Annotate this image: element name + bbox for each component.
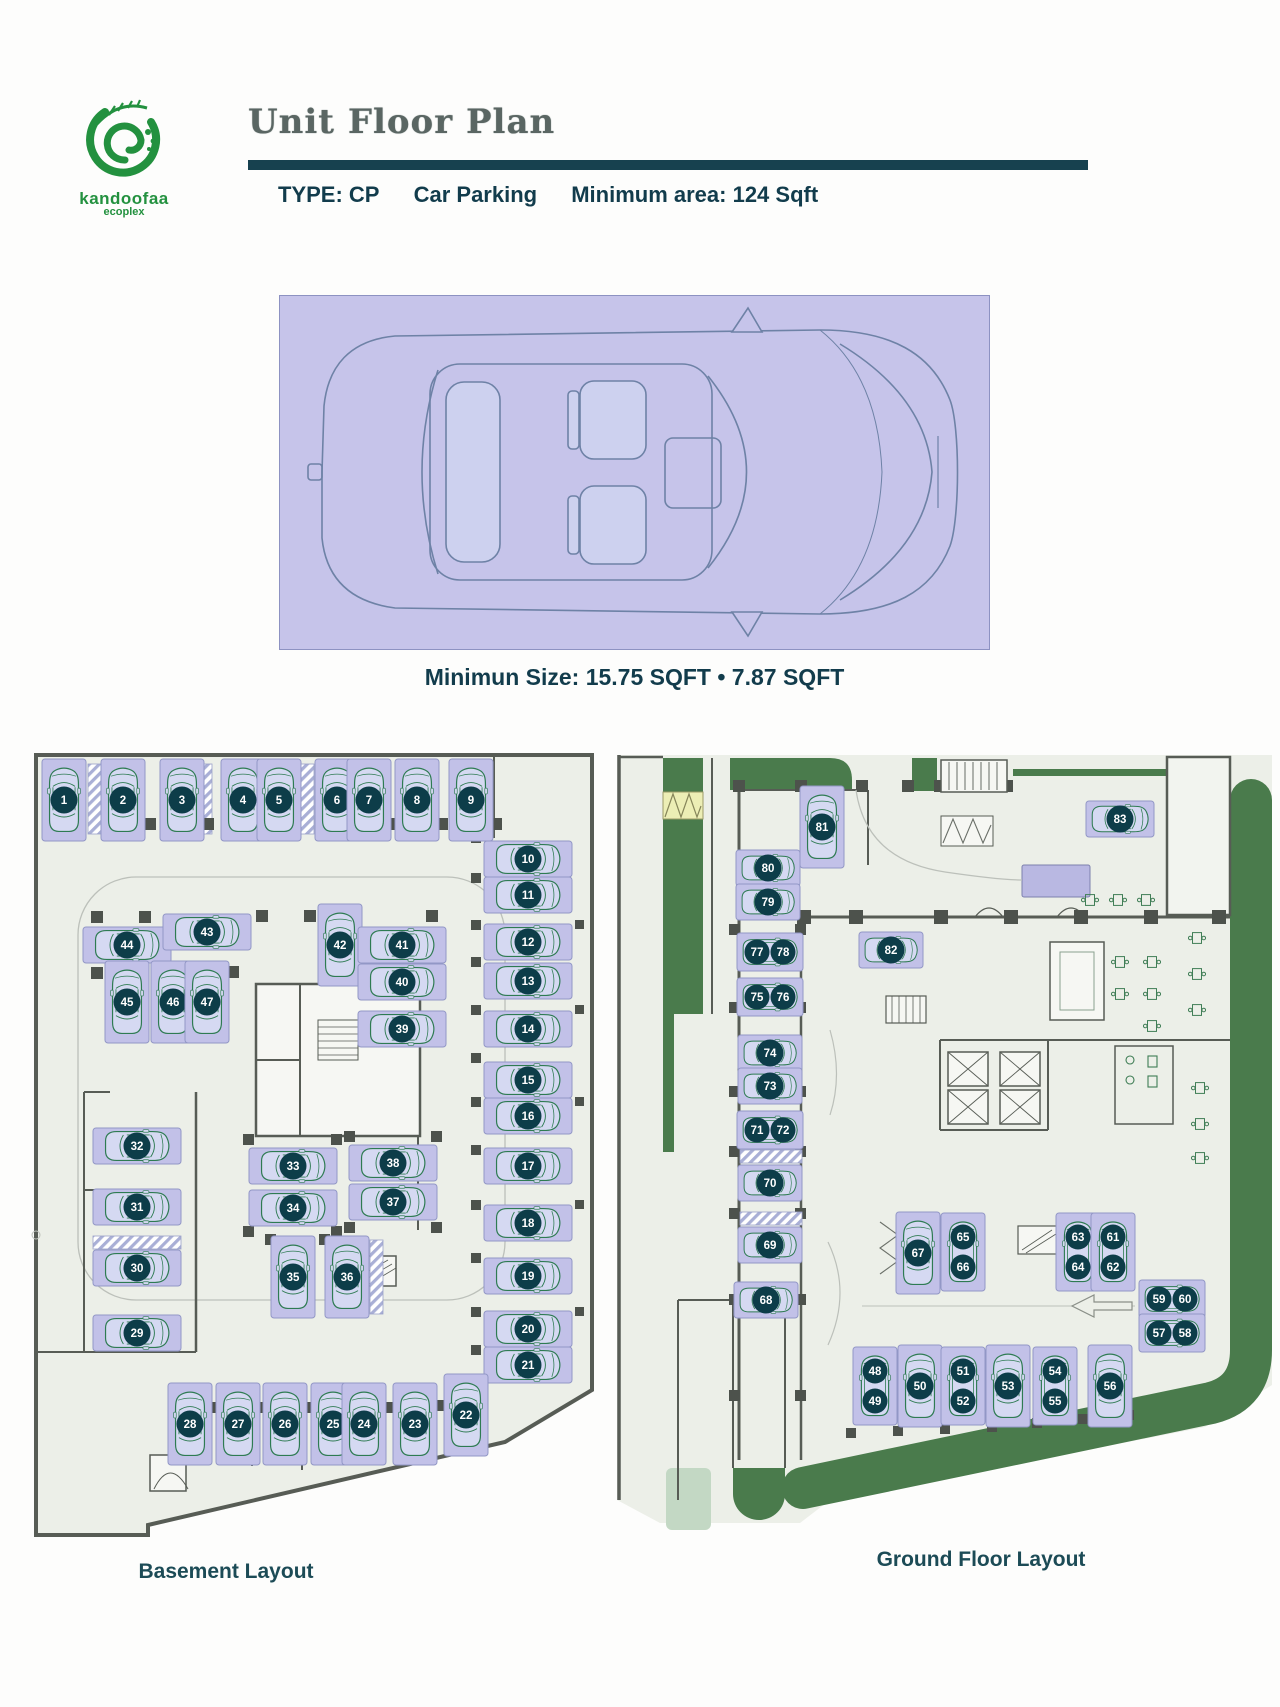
spot-number: 64 (1072, 1262, 1085, 1274)
parking-spot-33: 33 (249, 1148, 337, 1184)
basement-layout-label: Basement Layout (106, 1560, 346, 1584)
spot-number: 23 (409, 1419, 422, 1431)
spot-number: 51 (957, 1366, 970, 1378)
spot-number: 74 (764, 1048, 777, 1060)
spot-number: 78 (777, 947, 790, 959)
spot-number: 79 (762, 897, 775, 909)
parking-spot-40: 40 (358, 964, 446, 1000)
title-underline-bar (248, 160, 1088, 170)
parking-spot-70: 70 (738, 1165, 802, 1201)
parking-spot-19: 19 (484, 1258, 572, 1294)
spot-number: 24 (358, 1419, 371, 1431)
parking-spot-71-72: 7172 (737, 1111, 803, 1149)
unit-type-line: TYPE: CP Car Parking Minimum area: 124 S… (278, 182, 846, 208)
spot-number: 17 (522, 1161, 535, 1173)
spot-number: 35 (287, 1272, 300, 1284)
stairs-top (941, 760, 1007, 792)
minimum-size-caption: Minimun Size: 15.75 SQFT • 7.87 SQFT (279, 664, 990, 691)
parking-spot-26: 26 (263, 1383, 307, 1465)
spot-number: 10 (522, 854, 535, 866)
parking-spot-47: 47 (185, 961, 229, 1043)
reception-desk (1022, 865, 1090, 897)
unit-type-name: Car Parking (414, 182, 538, 207)
spot-number: 4 (240, 795, 247, 807)
parking-spot-50: 50 (898, 1345, 942, 1427)
parking-spot-79: 79 (736, 884, 800, 920)
parking-spot-48-49: 4849 (853, 1347, 897, 1425)
parking-spot-24: 24 (342, 1383, 386, 1465)
parking-spot-81: 81 (800, 786, 844, 868)
spot-number: 67 (912, 1248, 925, 1260)
parking-spot-5: 5 (257, 759, 301, 841)
spot-number: 45 (121, 997, 134, 1009)
spot-number: 33 (287, 1161, 300, 1173)
kandoofaa-logo: kandoofaa ecoplex (76, 98, 172, 218)
spot-number: 37 (387, 1197, 400, 1209)
logo-name: kandoofaa (76, 191, 172, 206)
spot-number: 34 (287, 1203, 300, 1215)
parking-spot-14: 14 (484, 1011, 572, 1047)
spot-number: 40 (396, 977, 409, 989)
spot-number: 30 (131, 1263, 144, 1275)
spot-number: 13 (522, 976, 535, 988)
kandoofaa-logo-icon (85, 98, 163, 184)
parking-spot-17: 17 (484, 1148, 572, 1184)
ground-floor-plan: 8180797778757674737172706968828367656663… (600, 690, 1280, 1550)
spot-number: 6 (334, 795, 340, 807)
parking-spot-45: 45 (105, 961, 149, 1043)
spot-number: 83 (1114, 814, 1127, 826)
spot-number: 68 (760, 1295, 773, 1307)
parking-spot-38: 38 (349, 1145, 437, 1181)
parking-spot-35: 35 (271, 1236, 315, 1318)
spot-number: 61 (1107, 1232, 1120, 1244)
spot-number: 63 (1072, 1232, 1085, 1244)
parking-spot-11: 11 (484, 877, 572, 913)
spot-number: 7 (366, 795, 372, 807)
parking-spot-43: 43 (163, 914, 251, 950)
spot-number: 71 (751, 1125, 764, 1137)
parking-spot-54-55: 5455 (1033, 1347, 1077, 1425)
parking-spot-31: 31 (93, 1189, 181, 1225)
parking-spot-2: 2 (101, 759, 145, 841)
spot-number: 2 (120, 795, 126, 807)
spot-number: 56 (1104, 1381, 1117, 1393)
spot-number: 20 (522, 1324, 535, 1336)
basement-floor-plan: 1234567891011121314151617181920214443424… (0, 690, 600, 1550)
spot-number: 73 (764, 1081, 777, 1093)
parking-spot-13: 13 (484, 963, 572, 999)
spot-number: 32 (131, 1141, 144, 1153)
stage-counter (1050, 942, 1104, 1020)
spot-number: 1 (61, 795, 68, 807)
parking-spot-39: 39 (358, 1011, 446, 1047)
spot-number: 21 (522, 1360, 535, 1372)
parking-spot-7: 7 (347, 759, 391, 841)
parking-spot-57-58: 5758 (1139, 1314, 1205, 1352)
parking-spot-32: 32 (93, 1128, 181, 1164)
parking-spot-29: 29 (93, 1315, 181, 1351)
spot-number: 5 (276, 795, 283, 807)
spot-number: 39 (396, 1024, 409, 1036)
page-title: Unit Floor Plan (248, 102, 555, 142)
spot-number: 8 (414, 795, 421, 807)
spot-number: 27 (232, 1419, 245, 1431)
parking-spot-15: 15 (484, 1062, 572, 1098)
spot-number: 22 (460, 1410, 473, 1422)
spot-number: 55 (1049, 1396, 1062, 1408)
spot-number: 72 (777, 1125, 790, 1137)
spot-number: 49 (869, 1396, 882, 1408)
spot-number: 43 (201, 927, 214, 939)
spot-number: 52 (957, 1396, 970, 1408)
spot-number: 36 (341, 1272, 354, 1284)
parking-spot-65-66: 6566 (941, 1213, 985, 1291)
parking-spot-56: 56 (1088, 1345, 1132, 1427)
parking-spot-27: 27 (216, 1383, 260, 1465)
parking-spot-59-60: 5960 (1139, 1280, 1205, 1318)
parking-spot-36: 36 (325, 1236, 369, 1318)
spot-number: 28 (184, 1419, 197, 1431)
spot-number: 54 (1049, 1366, 1062, 1378)
spot-number: 70 (764, 1178, 777, 1190)
parking-spot-21: 21 (484, 1347, 572, 1383)
parking-spot-75-76: 7576 (737, 978, 803, 1016)
parking-spot-23: 23 (393, 1383, 437, 1465)
parking-spot-37: 37 (349, 1184, 437, 1220)
spot-number: 58 (1179, 1328, 1192, 1340)
parking-spot-20: 20 (484, 1311, 572, 1347)
parking-spot-74: 74 (738, 1035, 802, 1071)
parking-spot-69: 69 (738, 1227, 802, 1263)
spot-number: 9 (468, 795, 474, 807)
parking-spot-61-62: 6162 (1091, 1213, 1135, 1291)
parking-spot-82: 82 (859, 932, 923, 968)
entry-ramp-yellow (663, 792, 703, 819)
parking-spot-8: 8 (395, 759, 439, 841)
parking-spot-77-78: 7778 (737, 933, 803, 971)
spot-number: 3 (179, 795, 185, 807)
unit-min-area: Minimum area: 124 Sqft (571, 182, 818, 207)
spot-number: 59 (1153, 1294, 1166, 1306)
spot-number: 60 (1179, 1294, 1192, 1306)
parking-spot-34: 34 (249, 1190, 337, 1226)
spot-number: 42 (334, 940, 347, 952)
spot-number: 18 (522, 1218, 535, 1230)
parking-spot-30: 30 (93, 1250, 181, 1286)
parking-spot-83: 83 (1086, 801, 1154, 837)
parking-spot-53: 53 (986, 1345, 1030, 1427)
parking-spot-22: 22 (444, 1374, 488, 1456)
parking-spot-44: 44 (83, 927, 171, 963)
parking-spot-51-52: 5152 (941, 1347, 985, 1425)
spot-number: 26 (279, 1419, 292, 1431)
spot-number: 48 (869, 1366, 882, 1378)
car-dimensions-panel (279, 295, 990, 650)
spot-number: 62 (1107, 1262, 1120, 1274)
brochure-page: kandoofaa ecoplex Unit Floor Plan TYPE: … (0, 0, 1280, 1707)
spot-number: 77 (751, 947, 764, 959)
parking-spot-3: 3 (160, 759, 204, 841)
parking-spot-1: 1 (42, 759, 86, 841)
spot-number: 15 (522, 1075, 535, 1087)
spot-number: 12 (522, 937, 535, 949)
spot-number: 38 (387, 1158, 400, 1170)
parking-spot-12: 12 (484, 924, 572, 960)
spot-number: 53 (1002, 1381, 1015, 1393)
spot-number: 25 (327, 1419, 340, 1431)
spot-number: 76 (777, 992, 790, 1004)
parking-spot-16: 16 (484, 1098, 572, 1134)
parking-spot-67: 67 (896, 1212, 940, 1294)
spot-number: 80 (762, 863, 775, 875)
spot-number: 81 (816, 822, 829, 834)
spot-number: 11 (522, 890, 535, 902)
parking-spot-10: 10 (484, 841, 572, 877)
spot-number: 50 (914, 1381, 927, 1393)
parking-spot-41: 41 (358, 927, 446, 963)
spot-number: 69 (764, 1240, 777, 1252)
spot-number: 29 (131, 1328, 144, 1340)
spot-number: 66 (957, 1262, 970, 1274)
parking-spot-73: 73 (738, 1068, 802, 1104)
parking-spot-28: 28 (168, 1383, 212, 1465)
spot-number: 44 (121, 940, 134, 952)
spot-number: 16 (522, 1111, 535, 1123)
spot-number: 14 (522, 1024, 535, 1036)
spot-number: 31 (131, 1202, 144, 1214)
parking-spot-42: 42 (318, 904, 362, 986)
spot-number: 41 (396, 940, 409, 952)
spot-number: 19 (522, 1271, 535, 1283)
ground-floor-layout-label: Ground Floor Layout (851, 1548, 1111, 1572)
spot-number: 47 (201, 997, 214, 1009)
spot-number: 65 (957, 1232, 970, 1244)
ramp-zigzag (941, 816, 993, 846)
parking-spot-9: 9 (449, 759, 493, 841)
parking-spot-68: 68 (734, 1282, 798, 1318)
car-top-view-illustration (280, 296, 991, 651)
spot-number: 57 (1153, 1328, 1166, 1340)
spot-number: 82 (885, 945, 898, 957)
parking-spot-80: 80 (736, 850, 800, 886)
parking-spot-18: 18 (484, 1205, 572, 1241)
spot-number: 46 (167, 997, 180, 1009)
unit-type-label: TYPE: CP (278, 182, 379, 207)
spot-number: 75 (751, 992, 764, 1004)
